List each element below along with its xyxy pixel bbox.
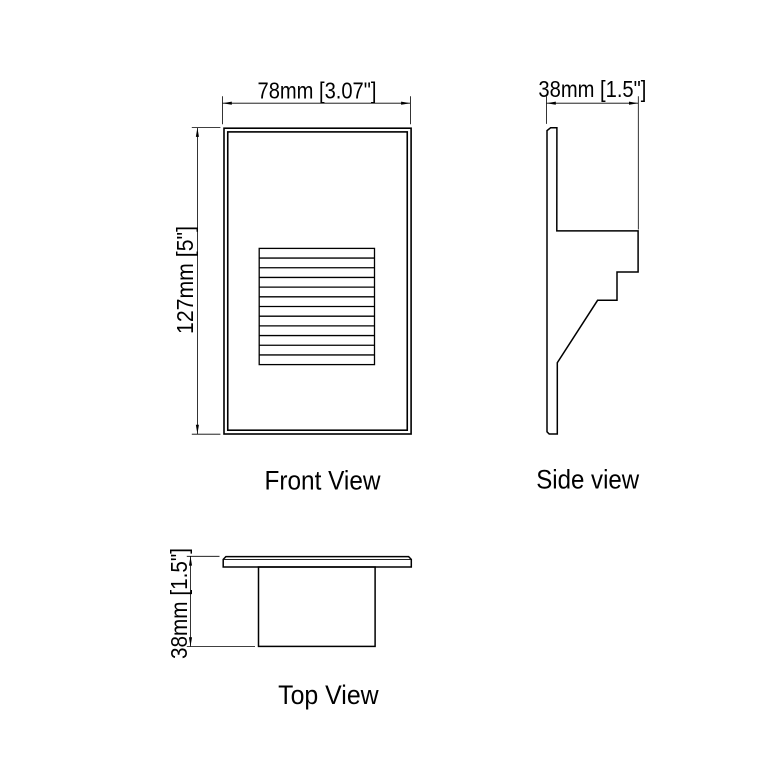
- svg-text:Front View: Front View: [265, 466, 381, 496]
- svg-text:Top View: Top View: [278, 680, 379, 710]
- svg-text:127mm [5"]: 127mm [5"]: [172, 226, 198, 334]
- svg-text:Side view: Side view: [536, 465, 639, 495]
- svg-text:38mm [1.5"]: 38mm [1.5"]: [166, 548, 192, 659]
- svg-text:78mm [3.07"]: 78mm [3.07"]: [258, 78, 377, 104]
- svg-text:38mm [1.5"]: 38mm [1.5"]: [538, 76, 646, 102]
